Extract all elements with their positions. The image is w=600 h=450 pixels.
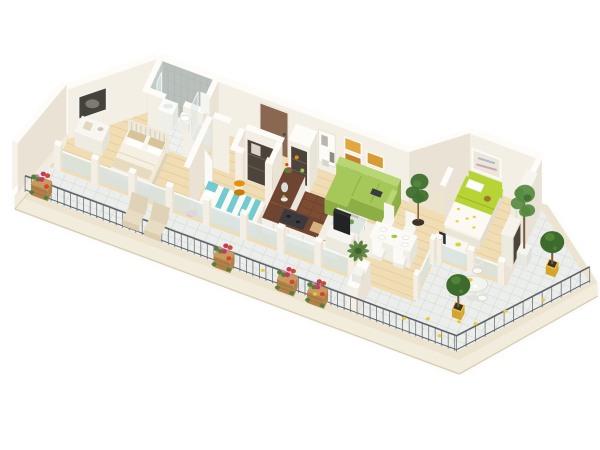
apartment-floor-plan-3d [0,0,600,450]
topiary-highlight [451,276,461,284]
burner [286,215,290,218]
topiary-highlight [545,233,555,241]
basket-flowers [44,184,49,189]
lemon-dot [503,310,507,313]
side-stool [234,189,245,195]
window-pier [430,239,435,266]
side-stool [234,180,245,186]
tall-potted-tree [514,188,524,198]
terrace-chair [472,268,482,274]
window-pier [203,200,210,227]
lemon-dot [402,317,406,320]
table-base [467,295,479,301]
plate [401,243,408,247]
door-handle [283,133,286,136]
duvet-dot [457,208,460,210]
basket-flowers [226,256,231,261]
tall-potted-tree [523,194,531,201]
duvet-dot [473,216,476,218]
duvet-dot [472,226,475,228]
indoor-palm [355,248,362,254]
duvet-dot [466,217,469,219]
basket-flowers [290,280,295,285]
window-pier [277,227,284,254]
basket-flowers [45,173,50,178]
lemon-dot [541,298,545,301]
window-pier [91,158,98,185]
salad-bowl [391,235,397,239]
shelf-art [330,152,335,164]
topiary-highlight [459,290,463,294]
basket-leaves [305,298,310,302]
window-pier [172,184,174,214]
basket-leaves [320,303,325,307]
window-pier [498,261,505,286]
basket-flowers [291,269,296,274]
lemon-dot [426,317,430,320]
hall-wall [213,118,230,174]
kitchen-sink [281,182,288,192]
indoor-ficus [412,193,424,203]
basket-flowers [321,281,326,286]
lemon-dot [457,320,461,323]
window-pier [413,274,418,301]
sink-basin [163,104,173,109]
basket-flowers [315,285,320,290]
window-pier [441,235,443,262]
basket-flowers [228,245,233,250]
basket-flowers [31,175,36,180]
table-plate [473,285,478,288]
basket-flowers [277,270,282,275]
counter-flowers [285,163,288,166]
basket-leaves [289,291,294,295]
basket-leaves [212,262,217,266]
lemon-dot [261,269,265,272]
window-pier [246,211,248,241]
basket-flowers [285,273,290,278]
indoor-ficus [413,180,421,187]
floor-plan-render [0,0,600,450]
basket-leaves [29,190,34,194]
basket-flowers [39,177,44,182]
plate [380,228,387,232]
sideboard-decor [98,127,104,131]
pantry-item [295,155,299,159]
bw-picture-swirl [85,99,99,108]
duvet-dot [456,220,459,222]
counter-flowers [288,167,291,170]
window-pier [284,225,286,255]
window-pier [60,142,62,172]
toilet-seat [180,115,190,121]
yellow-toy [455,243,461,247]
plate [379,236,386,240]
basket-flowers [222,249,227,254]
teddy-bear [484,196,491,202]
topiary-highlight [553,247,557,251]
lemon-dot [474,322,478,325]
fruit [282,195,285,198]
lemon-dot [313,292,317,295]
window-pier [209,197,211,227]
window-pier [321,239,323,268]
basket-flowers [320,292,325,297]
window-pier [504,259,506,287]
basket-flowers [214,247,219,252]
window-pier [98,156,100,186]
pantry-item [300,169,304,173]
window-pier [314,241,321,268]
tall-potted-tree [519,207,531,217]
plate [402,236,409,240]
basket-leaves [44,196,49,200]
basket-leaves [226,268,231,272]
window-pier [240,213,247,240]
towel [200,92,209,116]
lemon-dot [438,334,442,337]
basket-flowers [307,282,312,287]
basket-leaves [275,286,280,290]
window-pier [54,144,61,171]
burner [296,221,300,224]
